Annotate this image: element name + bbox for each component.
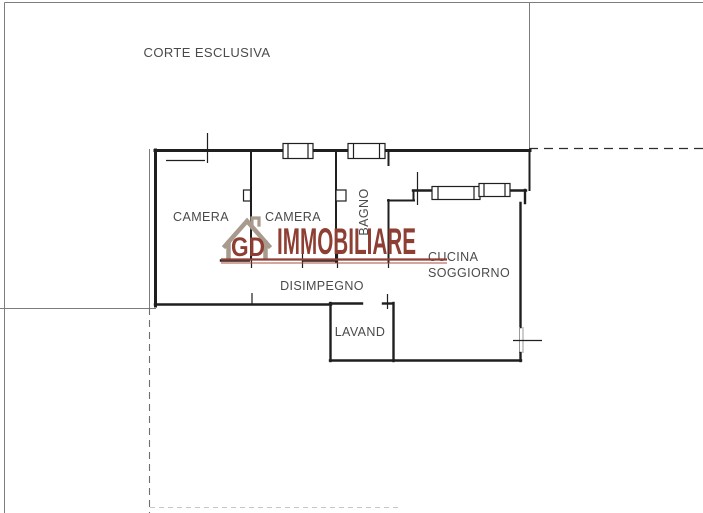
kitchen-french-window — [432, 187, 480, 200]
door-jamb-camera1 — [244, 190, 251, 201]
label-disimpegno: DISIMPEGNO — [280, 279, 364, 293]
wall-step-bagno-kitchen — [388, 191, 414, 201]
floorplan-canvas: CORTE ESCLUSIVA CAMERA CAMERA BAGNO CUCI… — [0, 0, 703, 513]
floorplan-svg: CORTE ESCLUSIVA CAMERA CAMERA BAGNO CUCI… — [0, 0, 703, 513]
label-corte-esclusiva: CORTE ESCLUSIVA — [144, 45, 271, 60]
house-icon: GD — [225, 218, 269, 262]
label-camera-1: CAMERA — [173, 210, 229, 224]
brand-text: IMMOBILIARE — [277, 221, 416, 262]
watermark-logo: GD IMMOBILIARE — [221, 218, 447, 263]
label-soggiorno: SOGGIORNO — [428, 266, 510, 280]
house-chimney — [252, 218, 259, 228]
monogram-text: GD — [231, 232, 265, 262]
wall-kitchen-top-segment2 — [509, 190, 526, 203]
door-jamb-bagno — [336, 190, 346, 201]
label-cucina: CUCINA — [428, 250, 479, 264]
label-lavand: LAVAND — [335, 325, 386, 339]
